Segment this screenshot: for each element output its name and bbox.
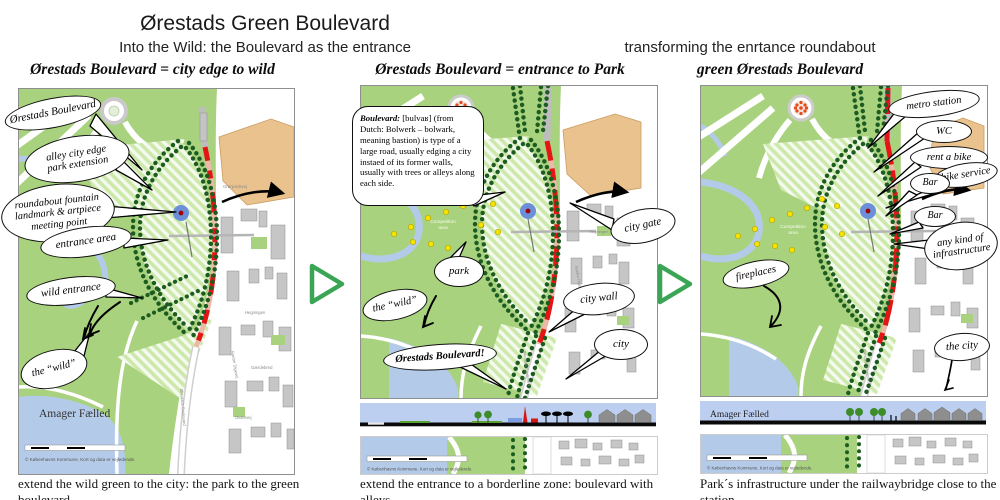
copyright: © Københavns Kommune, Kort og data er ve… xyxy=(367,467,473,472)
panel1-heading: Ørestads Boulevard = city edge to wild xyxy=(15,61,290,79)
slide: Ørestads Green Boulevard Into the Wild: … xyxy=(0,0,1000,500)
svg-text:Grønjordsvej: Grønjordsvej xyxy=(223,184,247,189)
roundabout xyxy=(102,99,126,123)
panel3-caption: Park´s infrastructure under the railwayb… xyxy=(700,476,1000,500)
panel1-caption: extend the wild green to the city: the p… xyxy=(18,476,318,500)
minimap-panel2: © Københavns Kommune, Kort og data er ve… xyxy=(360,436,658,475)
bubble-city: city xyxy=(594,329,648,360)
bubble-boulevard-definition: Boulevard: [bulvaʁ] (from Dutch: Bolwerk… xyxy=(352,106,484,206)
svg-text:Competition: Competition xyxy=(780,224,806,230)
svg-text:Hegningen: Hegningen xyxy=(589,229,608,234)
section-amager-label: Amager Fælled xyxy=(710,410,769,420)
scale-bar xyxy=(707,455,807,461)
copyright: © Københavns Kommune, Kort og data er ve… xyxy=(707,466,813,471)
scale-bar xyxy=(367,456,467,462)
subtitle-left: Into the Wild: the Boulevard as the entr… xyxy=(65,39,465,56)
section-pond xyxy=(508,418,522,422)
svg-text:Competition: Competition xyxy=(430,219,456,225)
bubble-wc: WC xyxy=(916,120,972,143)
bubble-park: park xyxy=(434,256,484,287)
scale-bar xyxy=(25,445,125,451)
transform-arrow-1 xyxy=(312,266,342,302)
subtitle-right: transforming the enrtance roundabout xyxy=(550,39,950,56)
svg-text:Gærdebred: Gærdebred xyxy=(251,365,273,370)
section-strip-panel2 xyxy=(360,403,656,429)
fountain xyxy=(860,203,876,219)
fountain xyxy=(520,203,536,219)
panel2-heading: Ørestads Boulevard = entrance to Park xyxy=(365,61,635,79)
svg-text:Oldenvej: Oldenvej xyxy=(235,415,252,420)
section-strip-panel3: Amager Fælled xyxy=(700,401,986,428)
panel2-caption: extend the entrance to a borderline zone… xyxy=(360,476,670,500)
svg-text:Hegningen: Hegningen xyxy=(245,310,266,315)
section-houses xyxy=(599,410,651,423)
panel3-heading: green Ørestads Boulevard xyxy=(688,61,872,79)
transform-arrow-2 xyxy=(660,266,690,302)
section-umbrella-trees xyxy=(542,412,573,423)
amager-label: Amager Fælled xyxy=(39,408,110,420)
bubble-bar-1: Bar xyxy=(910,173,950,194)
roundabout-transformed xyxy=(789,96,813,120)
copyright: © Københavns Kommune, Kort og data er ve… xyxy=(25,456,135,462)
svg-text:area: area xyxy=(788,230,798,236)
page-title: Ørestads Green Boulevard xyxy=(65,12,465,36)
svg-text:area: area xyxy=(438,225,448,231)
fountain xyxy=(173,205,189,221)
minimap-panel3: © Københavns Kommune, Kort og data er ve… xyxy=(700,434,988,474)
